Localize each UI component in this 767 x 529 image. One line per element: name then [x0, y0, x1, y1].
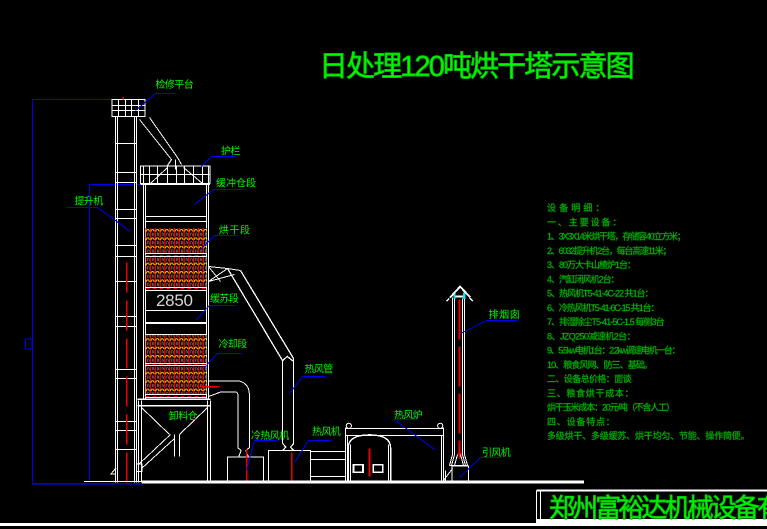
svg-text:多级烘干、多级缓苏、烘干均匀、节能、操作简便。: 多级烘干、多级缓苏、烘干均匀、节能、操作简便。 — [547, 430, 749, 441]
svg-text:2850: 2850 — [156, 291, 193, 310]
svg-text:冷却段: 冷却段 — [219, 338, 248, 351]
svg-text:1、3X3X14米烘干塔，存储容40立方米；: 1、3X3X14米烘干塔，存储容40立方米； — [547, 231, 685, 242]
svg-text:5、热风机T5-41-4C-22 共1台：: 5、热风机T5-41-4C-22 共1台： — [547, 288, 653, 299]
svg-text:烘干玉米成本：20元/吨（不含人工）: 烘干玉米成本：20元/吨（不含人工） — [547, 402, 674, 413]
svg-text:排烟囱: 排烟囱 — [489, 308, 521, 321]
svg-text:9、5.5kw电机1台：2.2kw调速电机一台：: 9、5.5kw电机1台：2.2kw调速电机一台： — [547, 345, 679, 356]
svg-text:卸料仓: 卸料仓 — [169, 410, 198, 423]
svg-text:设备明细：: 设备明细： — [547, 202, 608, 213]
svg-text:一、主要设备：: 一、主要设备： — [547, 216, 623, 227]
svg-text:烘干段: 烘干段 — [219, 224, 251, 237]
svg-text:3、80万大卡山楂炉1台：: 3、80万大卡山楂炉1台： — [547, 259, 635, 270]
svg-text:检修平台: 检修平台 — [156, 78, 194, 91]
svg-text:提升机: 提升机 — [75, 195, 104, 208]
svg-text:缓苏段: 缓苏段 — [210, 292, 239, 305]
svg-text:热风机: 热风机 — [312, 425, 341, 438]
svg-text:三、粮食烘干成本：: 三、粮食烘干成本： — [547, 387, 634, 398]
svg-text:10、粮食风网、防三、基础。: 10、粮食风网、防三、基础。 — [547, 359, 652, 370]
svg-text:4、汽缸闭风机2台：: 4、汽缸闭风机2台： — [547, 273, 619, 284]
svg-text:2、6032提升机2台，每台高速11米；: 2、6032提升机2台，每台高速11米； — [547, 245, 670, 256]
svg-text:6、冷热风机T5-41-6C-15 共1台：: 6、冷热风机T5-41-6C-15 共1台： — [547, 302, 658, 313]
svg-text:二、设备总价格：面谈: 二、设备总价格：面谈 — [547, 373, 632, 384]
svg-text:7、排湿除尘T5-41-5C-1.5 每侧3台: 7、排湿除尘T5-41-5C-1.5 每侧3台 — [547, 316, 665, 327]
svg-text:四、设备特点：: 四、设备特点： — [547, 416, 616, 427]
svg-text:8、JZQ250减速机2台：: 8、JZQ250减速机2台： — [547, 330, 635, 341]
svg-text:护栏: 护栏 — [221, 145, 240, 158]
svg-text:郑州富裕达机械设备有限公司: 郑州富裕达机械设备有限公司 — [549, 493, 767, 523]
svg-text:日处理120吨烘干塔示意图: 日处理120吨烘干塔示意图 — [319, 50, 633, 83]
svg-text:热风管: 热风管 — [305, 363, 334, 376]
svg-text:缓冲仓段: 缓冲仓段 — [216, 177, 256, 190]
